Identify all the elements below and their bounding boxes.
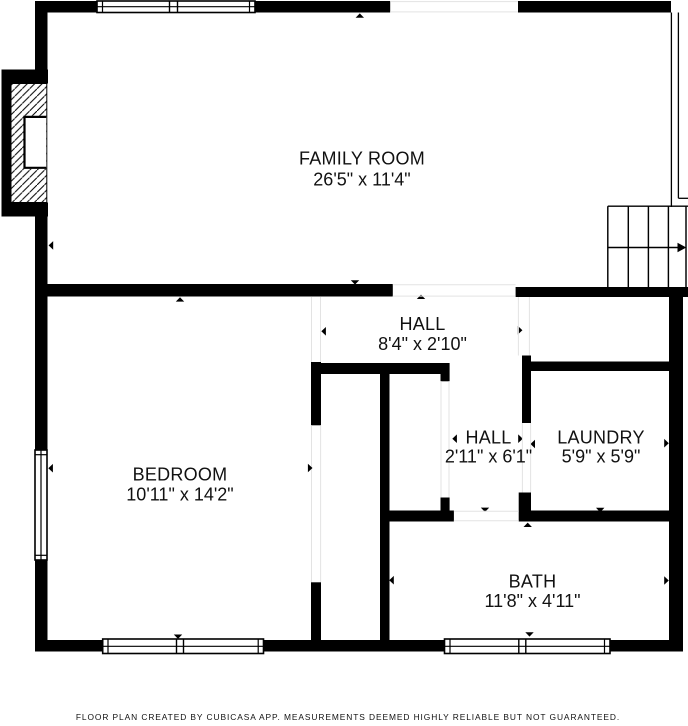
svg-text:LAUNDRY: LAUNDRY [557,428,644,448]
svg-text:FLOOR PLAN CREATED BY CUBICASA: FLOOR PLAN CREATED BY CUBICASA APP. MEAS… [76,712,620,722]
svg-text:11'8" x 4'11": 11'8" x 4'11" [484,591,580,611]
svg-text:BATH: BATH [509,572,557,592]
svg-text:5'9" x 5'9": 5'9" x 5'9" [562,447,641,467]
svg-text:10'11" x 14'2": 10'11" x 14'2" [126,485,233,505]
svg-text:HALL: HALL [465,428,511,448]
svg-text:8'4" x 2'10": 8'4" x 2'10" [378,334,467,354]
svg-text:26'5" x 11'4": 26'5" x 11'4" [313,170,410,190]
svg-text:FAMILY ROOM: FAMILY ROOM [299,148,425,168]
svg-text:HALL: HALL [399,314,445,334]
svg-text:BEDROOM: BEDROOM [133,465,228,485]
svg-text:2'11" x 6'1": 2'11" x 6'1" [445,447,532,467]
